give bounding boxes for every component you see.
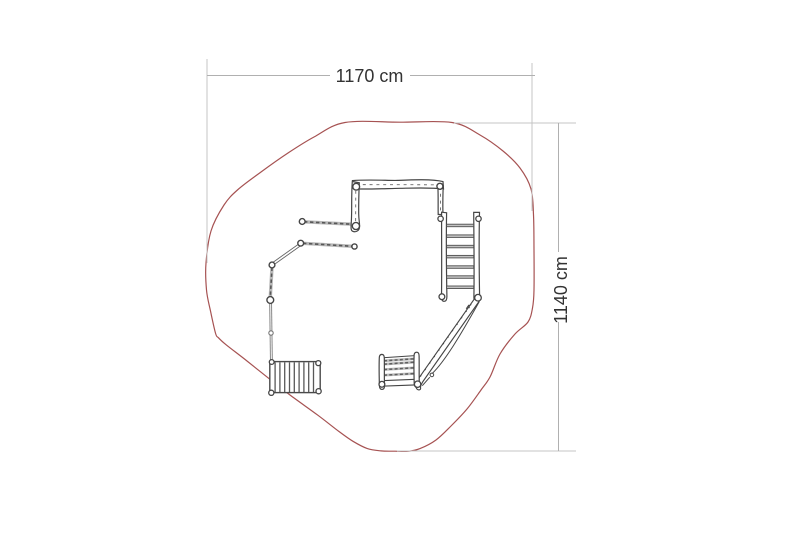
svg-text:1170 cm: 1170 cm: [336, 66, 404, 86]
svg-text:1140 cm: 1140 cm: [551, 256, 571, 324]
